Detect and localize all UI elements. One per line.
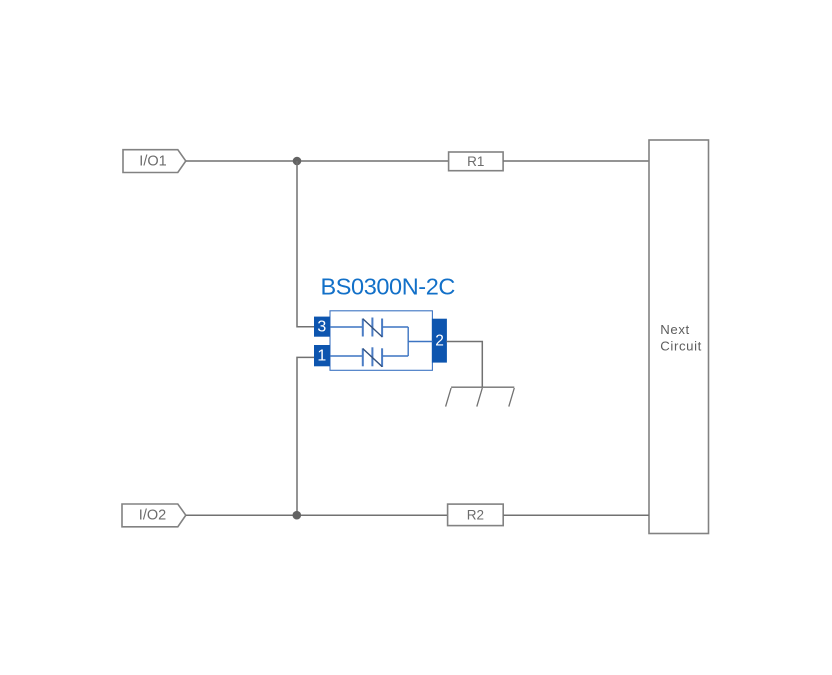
svg-text:3: 3 bbox=[317, 319, 326, 336]
svg-text:Circuit: Circuit bbox=[660, 338, 702, 353]
svg-text:R2: R2 bbox=[467, 508, 484, 523]
svg-text:1: 1 bbox=[317, 348, 326, 365]
svg-text:R1: R1 bbox=[467, 154, 484, 169]
svg-text:2: 2 bbox=[435, 333, 444, 350]
svg-text:I/O1: I/O1 bbox=[139, 153, 166, 169]
svg-text:Next: Next bbox=[660, 322, 690, 337]
svg-text:I/O2: I/O2 bbox=[139, 508, 166, 524]
svg-text:BS0300N-2C: BS0300N-2C bbox=[321, 274, 456, 300]
